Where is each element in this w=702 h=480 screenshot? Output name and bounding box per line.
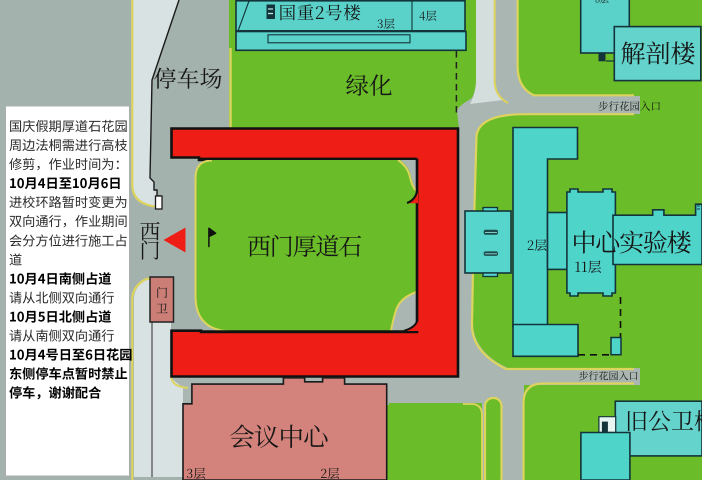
- svg-text:国重2号楼: 国重2号楼: [279, 0, 362, 25]
- svg-text:会分方位进行施工占: 会分方位进行施工占: [9, 230, 128, 249]
- svg-text:进校环路暂时变更为: 进校环路暂时变更为: [9, 192, 128, 211]
- svg-text:2层: 2层: [527, 235, 547, 254]
- svg-text:2层: 2层: [320, 464, 339, 480]
- svg-text:10月5日北侧占道: 10月5日北侧占道: [9, 307, 111, 326]
- svg-text:请从北侧双向通行: 请从北侧双向通行: [9, 288, 115, 307]
- svg-text:会议中心: 会议中心: [229, 418, 328, 454]
- svg-text:11层: 11层: [574, 257, 601, 277]
- svg-text:3层: 3层: [186, 464, 205, 480]
- svg-text:停车，谢谢配合: 停车，谢谢配合: [9, 383, 101, 402]
- svg-text:解剖楼: 解剖楼: [620, 35, 695, 71]
- svg-text:10月4号日至6日花园: 10月4号日至6日花园: [9, 345, 132, 364]
- svg-text:绿化: 绿化: [346, 67, 393, 101]
- svg-text:国庆假期厚道石花园: 国庆假期厚道石花园: [9, 116, 128, 135]
- svg-text:门: 门: [140, 235, 161, 265]
- svg-text:旧公卫楼: 旧公卫楼: [625, 404, 702, 437]
- svg-text:4层: 4层: [419, 8, 437, 24]
- svg-text:10月4日南侧占道: 10月4日南侧占道: [9, 268, 111, 287]
- svg-text:10月4日至10月6日: 10月4日至10月6日: [9, 173, 122, 192]
- svg-text:步行花园入口: 步行花园入口: [579, 368, 639, 383]
- svg-text:西门厚道石: 西门厚道石: [247, 227, 361, 262]
- svg-text:中心实验楼: 中心实验楼: [571, 224, 691, 260]
- svg-text:双向通行，作业期间: 双向通行，作业期间: [9, 211, 128, 230]
- svg-text:3层: 3层: [377, 16, 395, 32]
- svg-text:东侧停车点暂时禁止: 东侧停车点暂时禁止: [9, 364, 128, 383]
- svg-text:修剪，作业时间为：: 修剪，作业时间为：: [9, 154, 128, 173]
- svg-text:8层: 8层: [595, 0, 609, 6]
- svg-text:步行花园入口: 步行花园入口: [598, 99, 661, 114]
- svg-text:门: 门: [156, 284, 168, 301]
- svg-text:道: 道: [9, 249, 22, 268]
- svg-text:卫: 卫: [156, 300, 168, 317]
- svg-text:停车场: 停车场: [154, 61, 223, 94]
- svg-text:请从南侧双向通行: 请从南侧双向通行: [9, 326, 115, 345]
- svg-text:周边法桐需进行高枝: 周边法桐需进行高枝: [9, 135, 128, 154]
